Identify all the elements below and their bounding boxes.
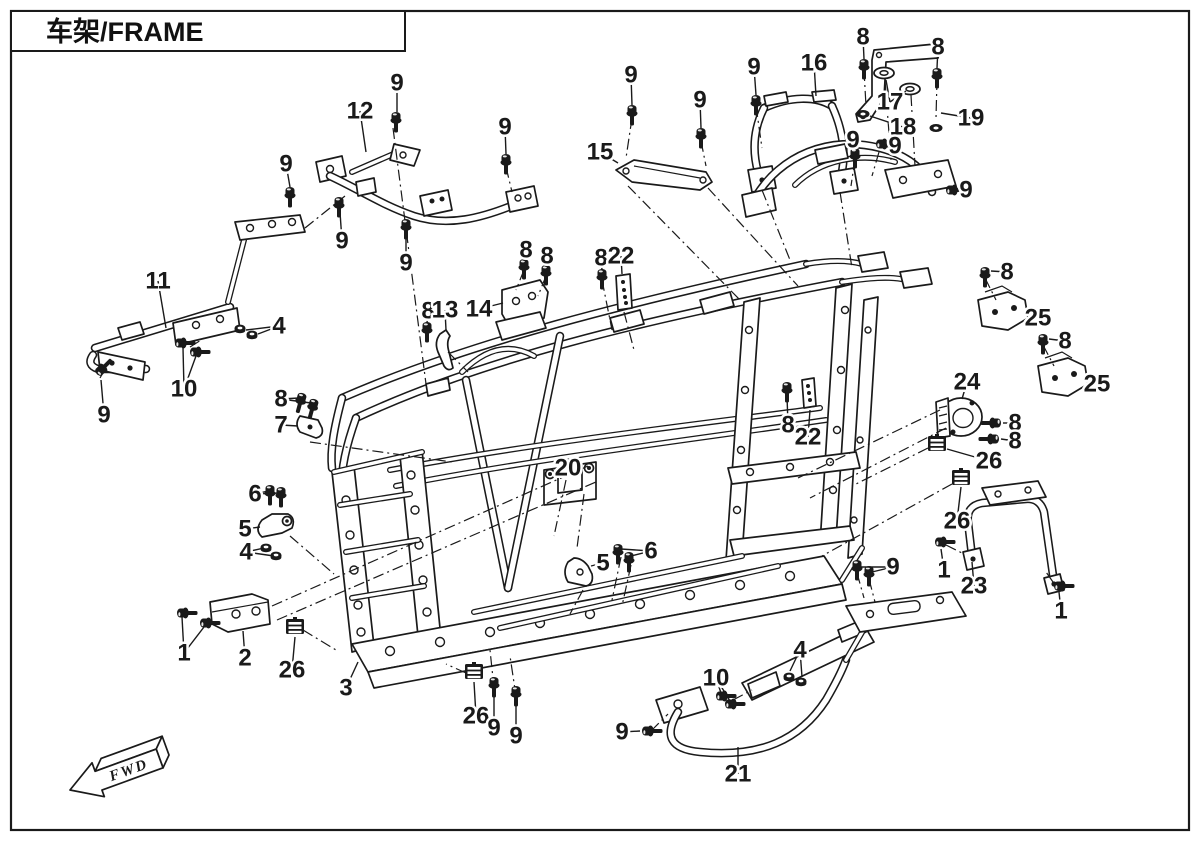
callout-label: 8 (274, 386, 287, 413)
callout-label: 9 (693, 87, 706, 114)
callout-label: 16 (801, 50, 828, 77)
callout-label: 10 (703, 665, 730, 692)
callout-label: 21 (725, 761, 752, 788)
callout-label: 14 (466, 296, 493, 323)
callout-label: 10 (171, 376, 198, 403)
callout-label: 8 (519, 237, 532, 264)
callout-label: 9 (888, 133, 901, 160)
callout-label: 8 (1008, 428, 1021, 455)
callout-label: 8 (931, 34, 944, 61)
callout-label: 2 (238, 645, 251, 672)
callout-label: 22 (795, 424, 822, 451)
callout-label: 8 (781, 412, 794, 439)
callout-label: 24 (954, 369, 981, 396)
callout-label: 9 (399, 250, 412, 277)
callout-label: 9 (487, 715, 500, 742)
callout-label: 4 (239, 539, 253, 566)
callout-label: 4 (272, 313, 286, 340)
callout-label: 26 (976, 448, 1003, 475)
callout-label: 9 (747, 54, 760, 81)
callout-label: 8 (540, 243, 553, 270)
callout-label: 8 (594, 245, 607, 272)
callout-label: 13 (432, 297, 459, 324)
callout-label: 9 (615, 719, 628, 746)
callout-label: 12 (347, 98, 374, 125)
callout-label: 25 (1025, 305, 1052, 332)
callout-label: 7 (274, 412, 287, 439)
callout-label: 9 (624, 62, 637, 89)
fwd-arrow: FWD (64, 736, 175, 807)
callout-label: 9 (335, 228, 348, 255)
page-title: 车架/FRAME (46, 16, 204, 47)
callout-label: 6 (248, 481, 261, 508)
callout-label: 19 (958, 105, 985, 132)
callout-label: 22 (608, 243, 635, 270)
callout-label: 15 (587, 139, 614, 166)
callout-label: 26 (463, 703, 490, 730)
callout-label: 8 (856, 24, 869, 51)
callout-label: 6 (644, 538, 657, 565)
callout-label: 8 (1058, 328, 1071, 355)
callout-label: 8 (1000, 259, 1013, 286)
callout-label: 9 (509, 723, 522, 750)
callout-label: 1 (1054, 598, 1067, 625)
callout-label: 11 (145, 268, 170, 295)
callout-label: 23 (961, 573, 988, 600)
callout-label: 1 (937, 557, 950, 584)
callout-label: 3 (339, 675, 352, 702)
callout-label: 5 (596, 550, 609, 577)
callout-label: 9 (959, 177, 972, 204)
callout-label: 9 (886, 554, 899, 581)
callout-label: 4 (793, 637, 807, 664)
callout-label: 9 (97, 402, 110, 429)
part-15-bracket (616, 160, 712, 190)
callout-label: 1 (177, 640, 190, 667)
callout-label: 25 (1084, 371, 1111, 398)
callout-label: 17 (877, 89, 904, 116)
callout-label: 26 (944, 508, 971, 535)
callout-label: 26 (279, 657, 306, 684)
frame-exploded-diagram: 车架/FRAME (0, 0, 1200, 841)
callout-label: 9 (846, 127, 859, 154)
callout-label: 9 (390, 70, 403, 97)
callout-label: 9 (279, 151, 292, 178)
callout-label: 9 (498, 114, 511, 141)
callout-label: 20 (555, 455, 582, 482)
